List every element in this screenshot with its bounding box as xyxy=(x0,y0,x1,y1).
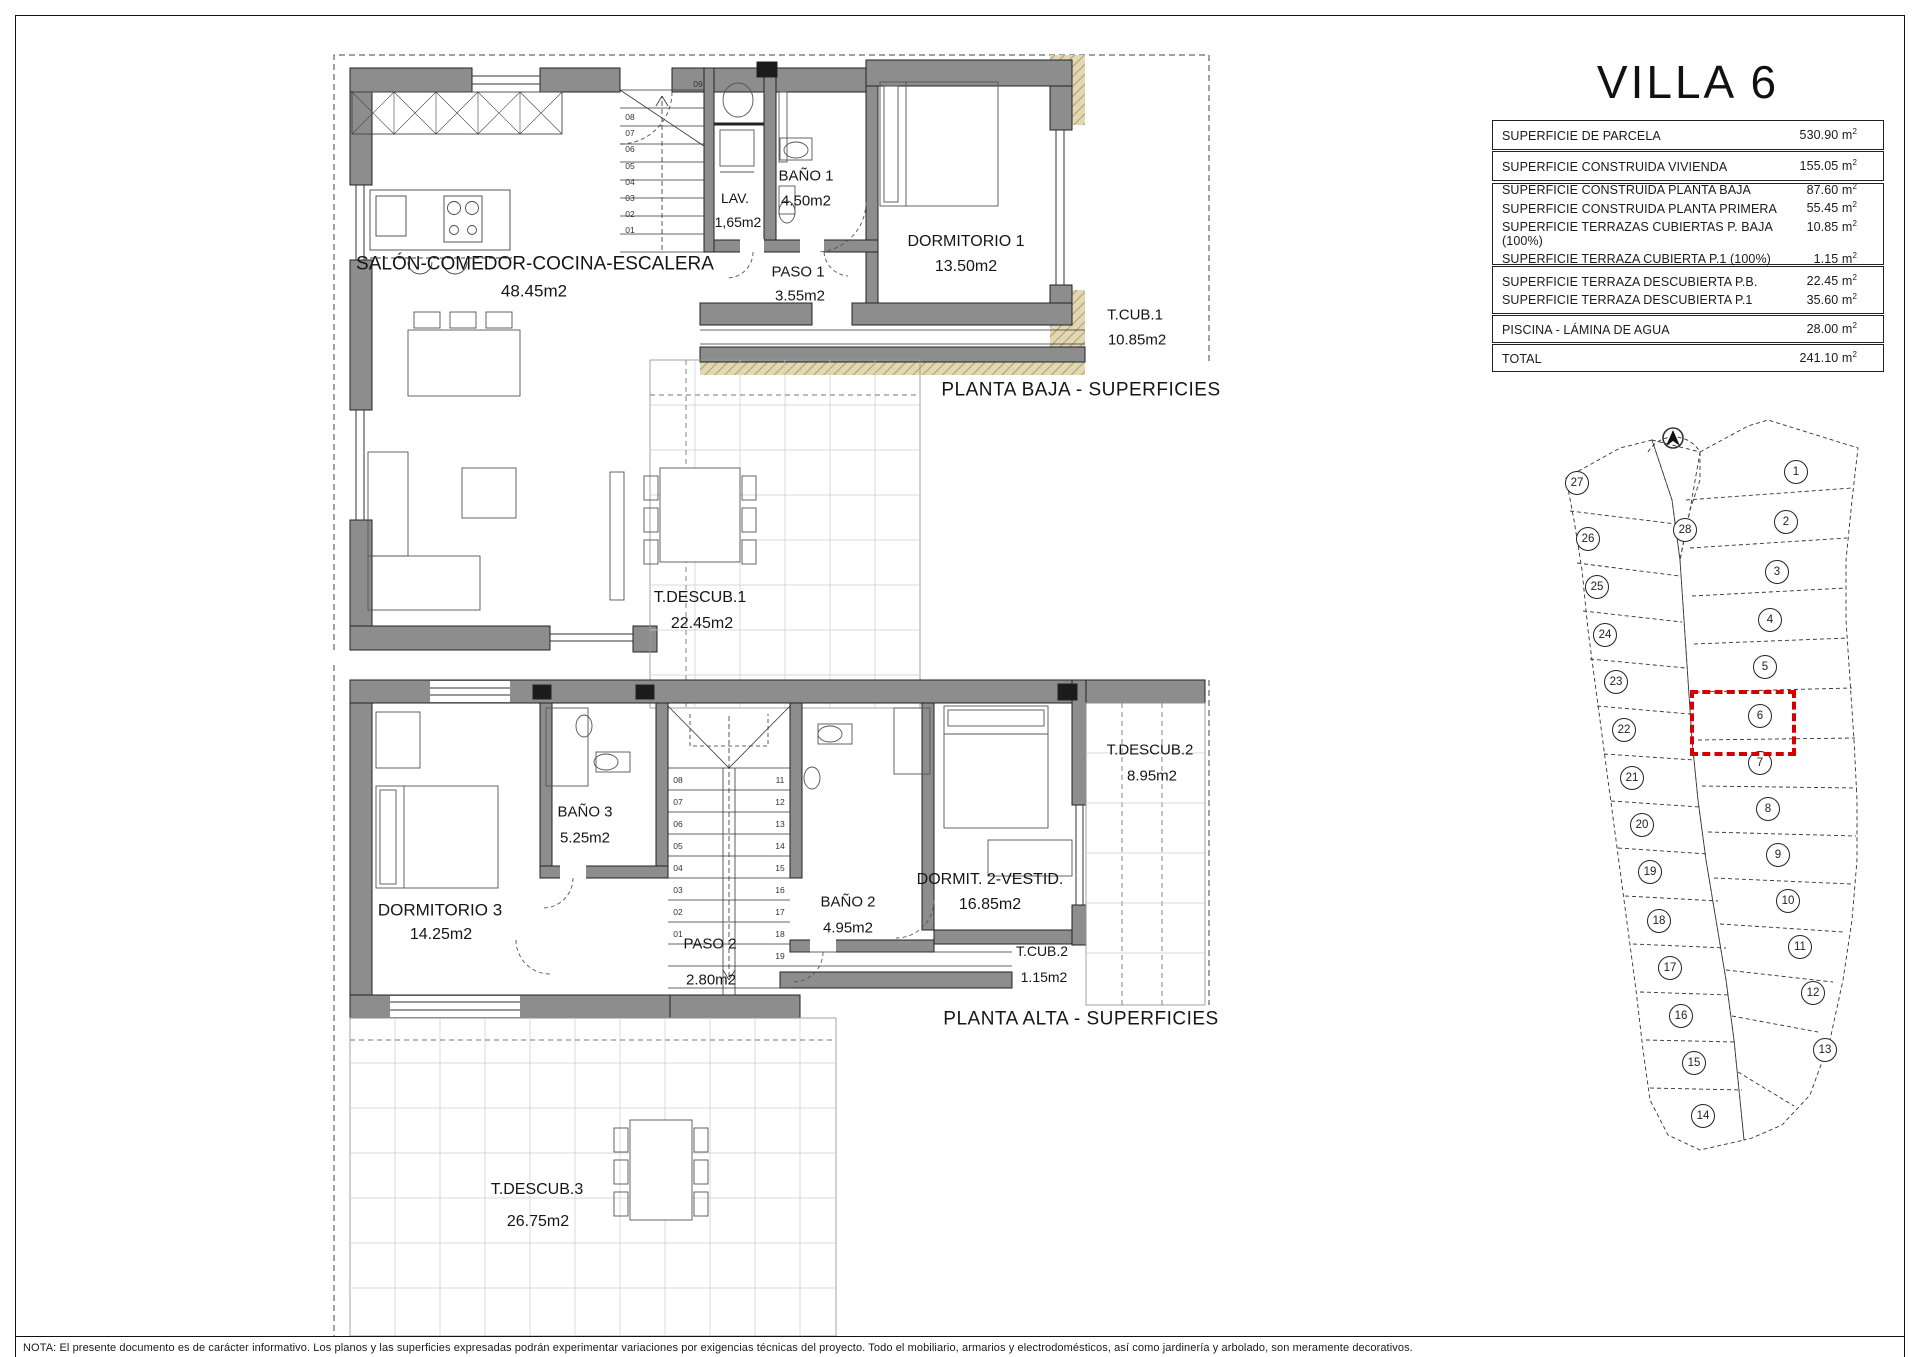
table-row: TOTAL241.10 m2 xyxy=(1493,349,1883,367)
surface-table-group: SUPERFICIE TERRAZA DESCUBIERTA P.B.22.45… xyxy=(1492,266,1884,314)
bath3-fixtures xyxy=(546,708,630,786)
stair-number-upper-right: 13 xyxy=(775,819,784,829)
room-label-dorm3: DORMITORIO 3 xyxy=(378,902,502,919)
room-label-bano1: BAÑO 1 xyxy=(778,169,833,184)
site-plot-14: 14 xyxy=(1691,1104,1715,1128)
site-plot-4: 4 xyxy=(1758,608,1782,632)
stair-number-ground: 03 xyxy=(625,193,634,203)
site-plot-25: 25 xyxy=(1585,575,1609,599)
room-label-dorm1: DORMITORIO 1 xyxy=(907,234,1024,250)
room-label-salon: SALÓN-COMEDOR-COCINA-ESCALERA xyxy=(356,255,714,274)
room-label-bano2: BAÑO 2 xyxy=(820,895,875,910)
site-right-block xyxy=(1680,420,1858,1140)
room-area-tcub2: 1.15m2 xyxy=(1021,970,1068,984)
surface-table-group: SUPERFICIE CONSTRUIDA VIVIENDA155.05 m2 xyxy=(1492,151,1884,181)
site-plot-17: 17 xyxy=(1658,956,1682,980)
site-plot-12: 12 xyxy=(1801,981,1825,1005)
bed-dorm2 xyxy=(944,706,1072,876)
table-row: SUPERFICIE DE PARCELA530.90 m2 xyxy=(1493,126,1883,144)
site-plot28-wedge xyxy=(1652,440,1700,560)
kitchen xyxy=(352,92,562,274)
room-area-tdescub1: 22.45m2 xyxy=(671,616,733,632)
site-plot-27: 27 xyxy=(1565,471,1589,495)
room-area-lav: 1,65m2 xyxy=(715,215,762,229)
highlighted-plot-box xyxy=(1690,690,1796,756)
site-plot-10: 10 xyxy=(1776,889,1800,913)
stair-number-ground: 05 xyxy=(625,161,634,171)
terrace-descub3 xyxy=(350,1018,836,1336)
site-plot-13: 13 xyxy=(1813,1038,1837,1062)
site-plot-20: 20 xyxy=(1630,813,1654,837)
room-label-tcub2: T.CUB.2 xyxy=(1016,944,1068,958)
table-row: PISCINA - LÁMINA DE AGUA28.00 m2 xyxy=(1493,320,1883,338)
room-area-tdescub2: 8.95m2 xyxy=(1127,769,1177,784)
stair-number-upper-right: 18 xyxy=(775,929,784,939)
windows-upper xyxy=(390,688,1083,1010)
stair-number-upper-right: 12 xyxy=(775,797,784,807)
stair-number-ground: 02 xyxy=(625,209,634,219)
site-plot-26: 26 xyxy=(1576,527,1600,551)
site-plot-19: 19 xyxy=(1638,860,1662,884)
plan-sheet: SALÓN-COMEDOR-COCINA-ESCALERA 48.45m2 LA… xyxy=(0,0,1920,1357)
room-area-bano3: 5.25m2 xyxy=(560,831,610,846)
room-area-salon: 48.45m2 xyxy=(501,283,567,300)
surface-table-group: SUPERFICIE CONSTRUIDA PLANTA BAJA87.60 m… xyxy=(1492,183,1884,265)
stair-number-ground: 04 xyxy=(625,177,634,187)
site-plot-8: 8 xyxy=(1756,797,1780,821)
stair-number-upper-right: 11 xyxy=(776,775,785,785)
footer-note-text: NOTA: El presente documento es de caráct… xyxy=(16,1342,1413,1354)
site-plot-18: 18 xyxy=(1647,909,1671,933)
room-area-bano1: 4.50m2 xyxy=(781,194,831,209)
site-plot-23: 23 xyxy=(1604,670,1628,694)
room-label-tcub1: T.CUB.1 xyxy=(1107,308,1163,323)
stair-number-ground: 01 xyxy=(625,225,634,235)
room-area-bano2: 4.95m2 xyxy=(823,921,873,936)
surface-table-group: SUPERFICIE DE PARCELA530.90 m2 xyxy=(1492,120,1884,150)
stair-number-upper-left: 06 xyxy=(673,819,682,829)
room-area-paso2: 2.80m2 xyxy=(686,973,736,988)
site-plot-1: 1 xyxy=(1784,460,1808,484)
room-label-lav: LAV. xyxy=(721,191,749,205)
table-row: SUPERFICIE TERRAZAS CUBIERTAS P. BAJA (1… xyxy=(1493,217,1883,249)
room-label-paso2: PASO 2 xyxy=(683,937,736,952)
stair-number-upper-left: 07 xyxy=(673,797,682,807)
walls xyxy=(350,60,1085,652)
stair-number-ground: 06 xyxy=(625,144,634,154)
stair-number-upper-left: 03 xyxy=(673,885,682,895)
stair-number-ground: 08 xyxy=(625,112,634,122)
site-plot-21: 21 xyxy=(1620,766,1644,790)
room-area-dorm3: 14.25m2 xyxy=(410,927,472,943)
stair-number-upper-right: 14 xyxy=(775,841,784,851)
table-row: SUPERFICIE TERRAZA CUBIERTA P.1 (100%)1.… xyxy=(1493,249,1883,267)
table-row: SUPERFICIE CONSTRUIDA PLANTA BAJA87.60 m… xyxy=(1493,181,1883,199)
room-area-dorm2: 16.85m2 xyxy=(959,897,1021,913)
stair-number-upper-left: 01 xyxy=(673,929,682,939)
site-plot-3: 3 xyxy=(1765,560,1789,584)
laundry-fixtures xyxy=(714,83,764,172)
stair-number-upper-left: 05 xyxy=(673,841,682,851)
stair-number-upper-right: 17 xyxy=(775,907,784,917)
room-label-dorm2: DORMIT. 2-VESTID. xyxy=(917,872,1064,888)
stair-number-upper-left: 02 xyxy=(673,907,682,917)
terrace-descub1 xyxy=(644,360,920,708)
site-plot-16: 16 xyxy=(1669,1004,1693,1028)
site-plot-24: 24 xyxy=(1593,623,1617,647)
stair-number-upper-right: 16 xyxy=(775,885,784,895)
table-row: SUPERFICIE CONSTRUIDA PLANTA PRIMERA55.4… xyxy=(1493,199,1883,217)
room-label-bano3: BAÑO 3 xyxy=(557,805,612,820)
table-row: SUPERFICIE CONSTRUIDA VIVIENDA155.05 m2 xyxy=(1493,157,1883,175)
caption-planta-baja: PLANTA BAJA - SUPERFICIES xyxy=(941,381,1220,400)
surface-table-group: TOTAL241.10 m2 xyxy=(1492,344,1884,372)
room-label-tdescub3: T.DESCUB.3 xyxy=(491,1182,583,1198)
surface-table-group: PISCINA - LÁMINA DE AGUA28.00 m2 xyxy=(1492,315,1884,343)
stair-number-upper-right: 15 xyxy=(775,863,784,873)
bath2-fixtures xyxy=(804,708,930,789)
living-furniture xyxy=(368,312,624,610)
stair-number-ground: 07 xyxy=(625,128,634,138)
stair-number-upper-right: 19 xyxy=(775,951,784,961)
site-plot-15: 15 xyxy=(1682,1051,1706,1075)
bed-dorm3 xyxy=(376,712,498,888)
room-label-tdescub2: T.DESCUB.2 xyxy=(1107,743,1194,758)
site-plan xyxy=(1566,420,1858,1150)
room-label-paso1: PASO 1 xyxy=(771,265,824,280)
site-plot-2: 2 xyxy=(1774,510,1798,534)
site-plot-9: 9 xyxy=(1766,843,1790,867)
table-row: SUPERFICIE TERRAZA DESCUBIERTA P.135.60 … xyxy=(1493,290,1883,308)
table-row: SUPERFICIE TERRAZA DESCUBIERTA P.B.22.45… xyxy=(1493,272,1883,290)
room-area-paso1: 3.55m2 xyxy=(775,289,825,304)
stair-number-upper-left: 08 xyxy=(673,775,682,785)
caption-planta-alta: PLANTA ALTA - SUPERFICIES xyxy=(943,1010,1218,1029)
room-area-tcub1: 10.85m2 xyxy=(1108,333,1166,348)
page-title: VILLA 6 xyxy=(1597,55,1779,109)
footer-note-bar: NOTA: El presente documento es de caráct… xyxy=(15,1336,1905,1357)
site-plot-5: 5 xyxy=(1753,655,1777,679)
room-area-tdescub3: 26.75m2 xyxy=(507,1214,569,1230)
bed-dorm1 xyxy=(880,82,998,206)
room-label-tdescub1: T.DESCUB.1 xyxy=(654,590,746,606)
stair-number-top: 09 xyxy=(693,80,702,89)
site-plot-11: 11 xyxy=(1788,935,1812,959)
stair-number-upper-left: 04 xyxy=(673,863,682,873)
room-area-dorm1: 13.50m2 xyxy=(935,259,997,275)
site-plot-28: 28 xyxy=(1673,518,1697,542)
site-plot-22: 22 xyxy=(1612,718,1636,742)
upper-floor-plan xyxy=(334,665,1209,1340)
